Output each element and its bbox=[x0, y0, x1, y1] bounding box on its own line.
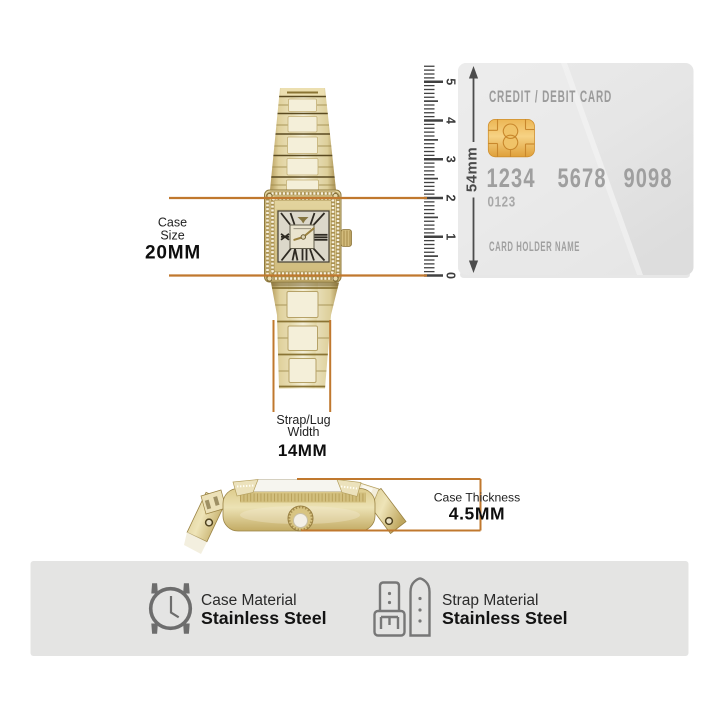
svg-text:Case Material: Case Material bbox=[201, 592, 297, 609]
svg-text:Case Thickness: Case Thickness bbox=[434, 491, 520, 505]
svg-text:4: 4 bbox=[444, 117, 458, 124]
svg-text:3: 3 bbox=[444, 156, 458, 163]
svg-text:5: 5 bbox=[444, 78, 458, 85]
svg-text:0123: 0123 bbox=[488, 193, 516, 210]
svg-text:0: 0 bbox=[444, 272, 458, 279]
svg-text:Width: Width bbox=[288, 425, 320, 439]
svg-text:Strap Material: Strap Material bbox=[442, 592, 538, 609]
svg-text:4.5MM: 4.5MM bbox=[449, 504, 505, 524]
svg-text:1: 1 bbox=[444, 233, 458, 240]
svg-text:5678: 5678 bbox=[558, 163, 607, 194]
svg-text:2: 2 bbox=[444, 195, 458, 202]
svg-text:Size: Size bbox=[160, 229, 184, 243]
svg-text:9098: 9098 bbox=[624, 163, 673, 194]
svg-text:20MM: 20MM bbox=[145, 243, 201, 264]
svg-text:CREDIT / DEBIT CARD: CREDIT / DEBIT CARD bbox=[489, 86, 612, 105]
svg-text:Stainless Steel: Stainless Steel bbox=[442, 608, 568, 628]
svg-text:Case: Case bbox=[158, 216, 187, 230]
svg-text:54mm: 54mm bbox=[463, 147, 480, 192]
svg-text:CARD HOLDER NAME: CARD HOLDER NAME bbox=[489, 240, 580, 255]
svg-text:Stainless Steel: Stainless Steel bbox=[201, 608, 327, 628]
svg-text:14MM: 14MM bbox=[278, 441, 327, 460]
svg-text:1234: 1234 bbox=[487, 163, 536, 194]
